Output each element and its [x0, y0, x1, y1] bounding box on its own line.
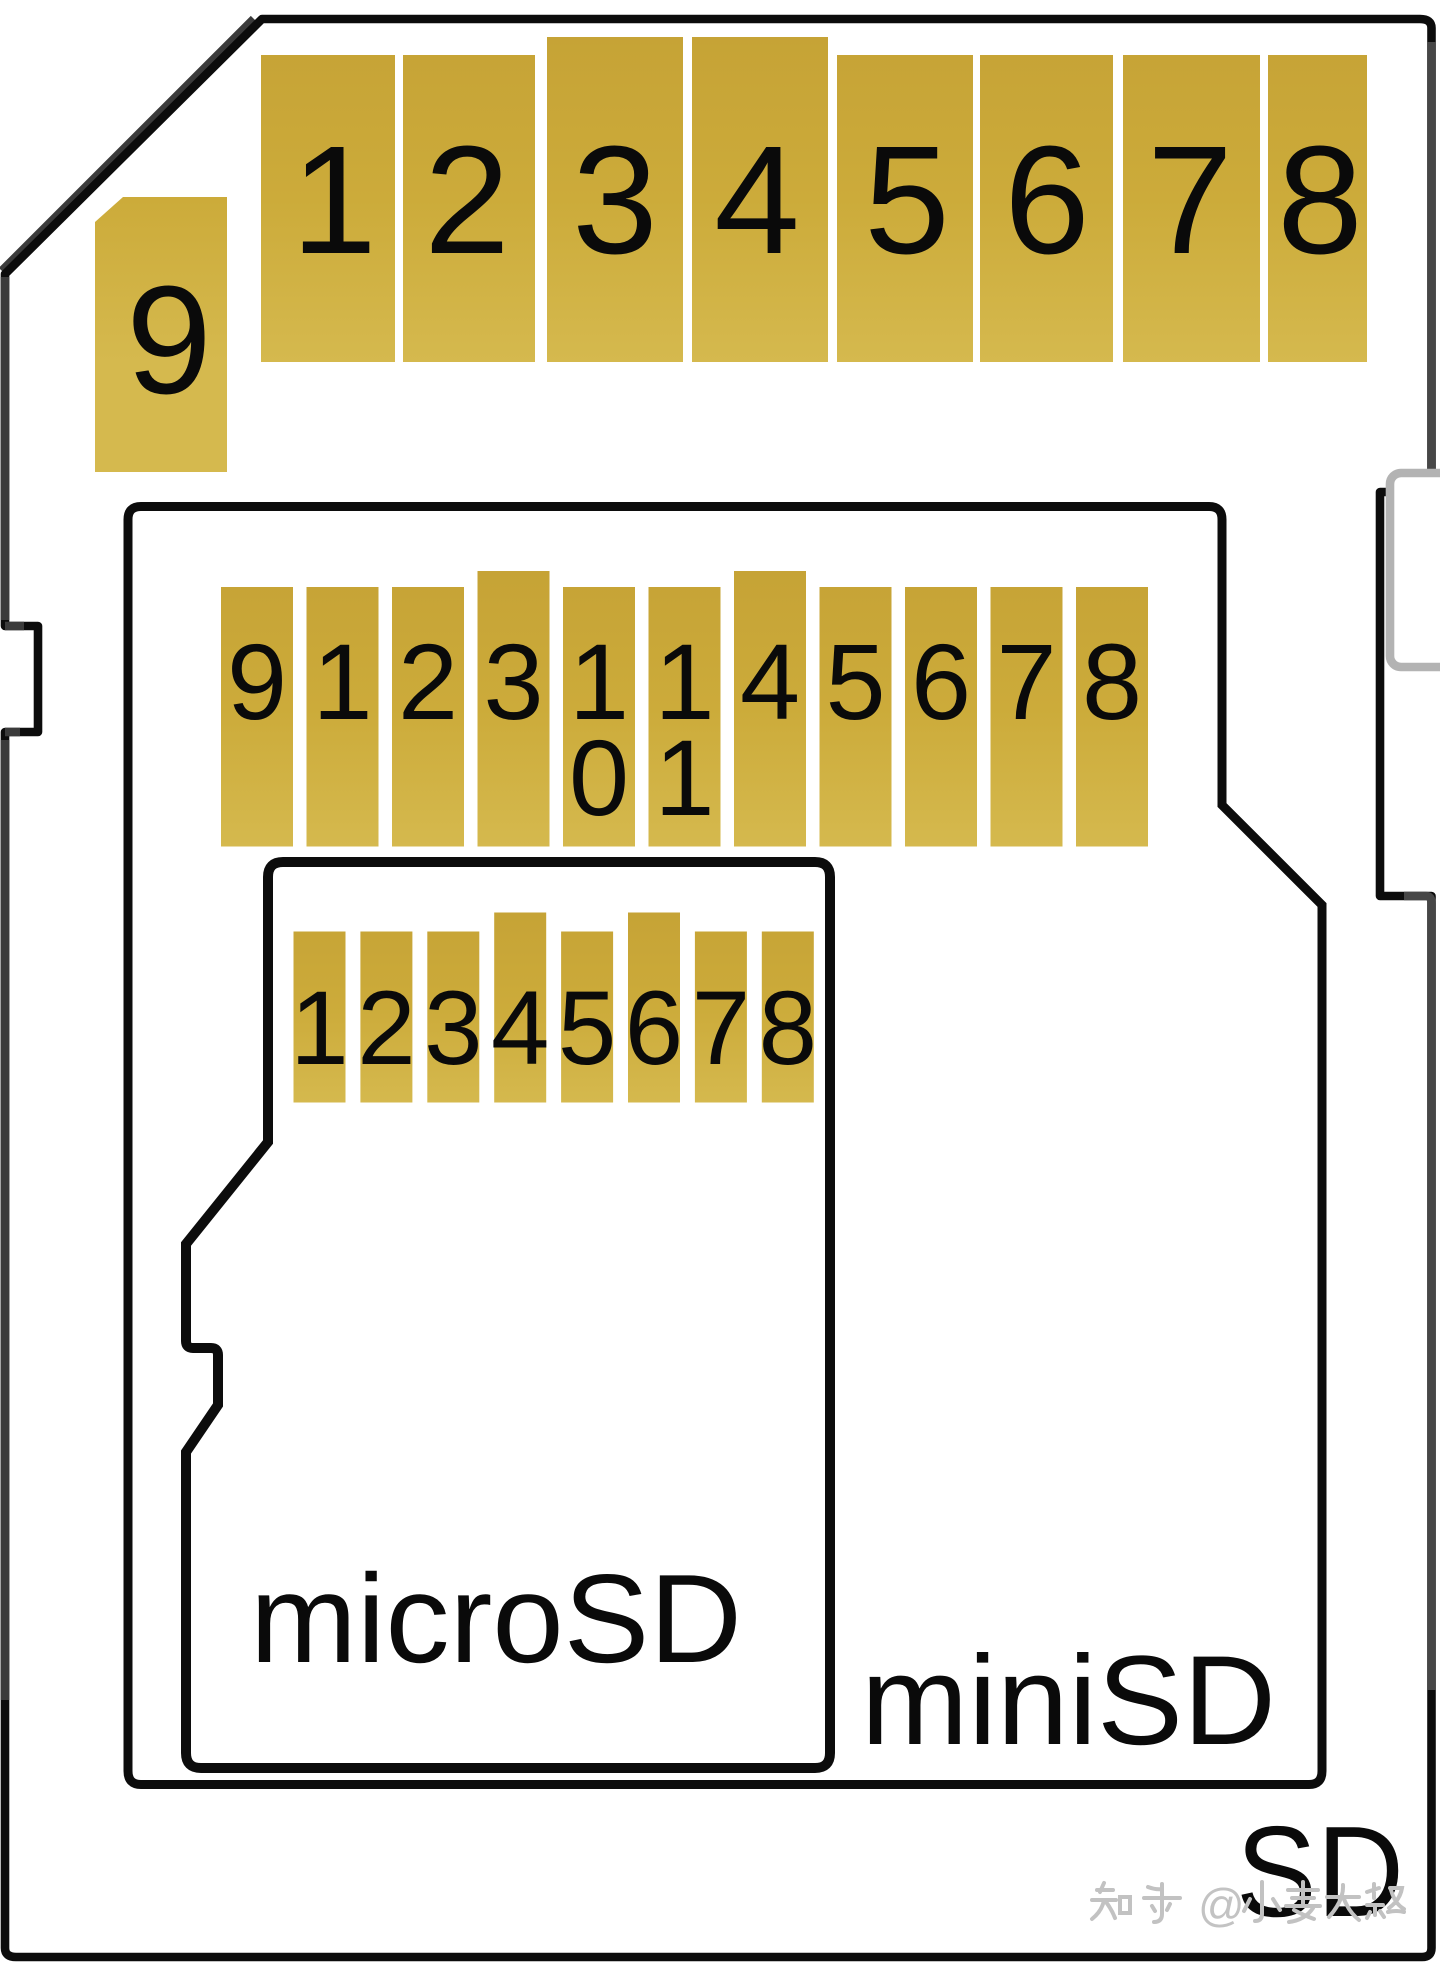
svg-text:3: 3	[483, 621, 543, 742]
svg-text:3: 3	[572, 114, 658, 286]
svg-text:miniSD: miniSD	[861, 1629, 1276, 1771]
svg-text:@: @	[1198, 1879, 1245, 1931]
svg-text:6: 6	[1004, 114, 1090, 286]
svg-text:8: 8	[1082, 621, 1142, 742]
svg-text:5: 5	[864, 114, 950, 286]
svg-text:1: 1	[291, 114, 377, 286]
svg-text:4: 4	[740, 621, 800, 742]
svg-text:2: 2	[357, 970, 415, 1087]
svg-text:4: 4	[714, 114, 800, 286]
svg-text:0: 0	[569, 717, 629, 838]
svg-text:1: 1	[290, 970, 348, 1087]
svg-text:5: 5	[825, 621, 885, 742]
svg-text:8: 8	[759, 970, 817, 1087]
svg-text:1: 1	[312, 621, 372, 742]
svg-text:SD: SD	[1236, 1800, 1404, 1944]
svg-text:6: 6	[625, 970, 683, 1087]
svg-text:9: 9	[227, 621, 287, 742]
svg-text:2: 2	[398, 621, 458, 742]
svg-text:microSD: microSD	[250, 1548, 742, 1689]
svg-text:5: 5	[558, 970, 616, 1087]
svg-text:7: 7	[996, 621, 1056, 742]
svg-text:2: 2	[424, 114, 510, 286]
svg-text:7: 7	[1147, 114, 1233, 286]
svg-text:6: 6	[911, 621, 971, 742]
svg-text:9: 9	[126, 254, 212, 426]
svg-text:4: 4	[491, 970, 549, 1087]
svg-text:8: 8	[1277, 114, 1363, 286]
svg-text:7: 7	[692, 970, 750, 1087]
svg-text:1: 1	[654, 717, 714, 838]
svg-text:3: 3	[424, 970, 482, 1087]
